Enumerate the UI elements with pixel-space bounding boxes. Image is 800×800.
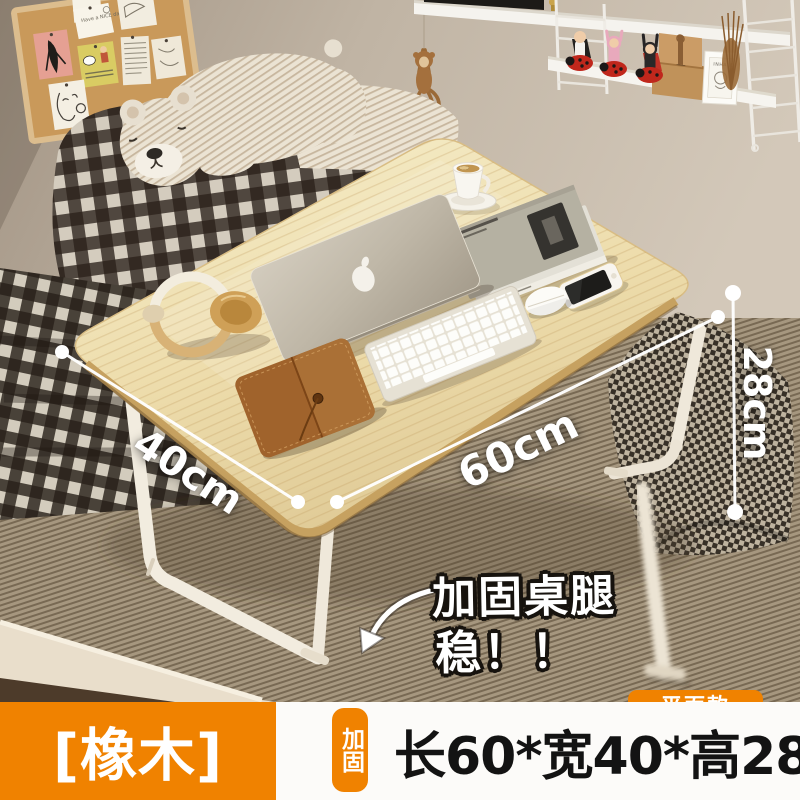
callout-line2: 稳！！ (434, 615, 579, 684)
product-image[interactable]: Have a NICE day! (0, 0, 800, 800)
variant-label: [橡木] (53, 710, 223, 792)
height-dimension-label: 28cm (735, 345, 779, 460)
gift-box-small (659, 33, 702, 68)
spec-text: 长60*宽40*高28 (394, 702, 800, 800)
bottom-bar: [橡木] 加固 长60*宽40*高28 (0, 702, 800, 800)
text-note (121, 36, 151, 85)
variant-box: [橡木] (0, 702, 276, 800)
reinforce-badge: 加固 (332, 708, 368, 792)
photo-scene: Have a NICE day! (0, 0, 800, 702)
